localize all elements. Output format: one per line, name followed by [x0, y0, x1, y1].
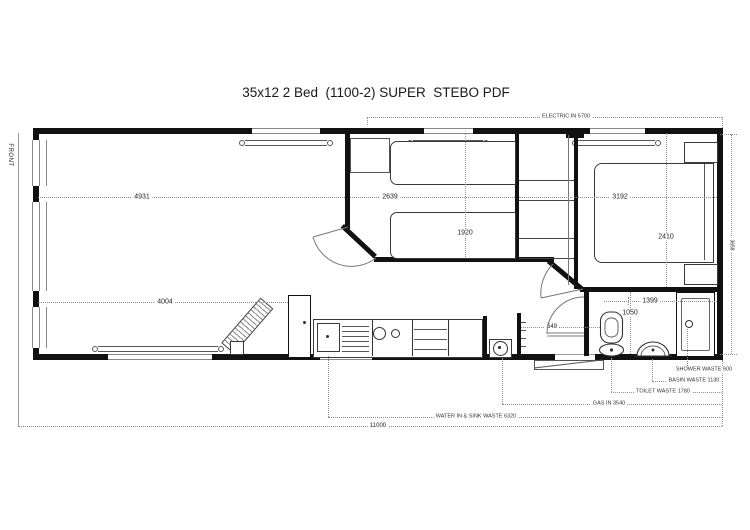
twin-door-icon: [313, 227, 376, 266]
drawing-overlay: [0, 0, 750, 530]
basin-icon: [634, 342, 672, 356]
master-door-icon: [541, 264, 583, 298]
step-diagonal: [534, 360, 602, 368]
toilet-icon: [600, 312, 624, 356]
floor-plan-page: 35x12 2 Bed (1100-2) SUPER STEBO PDF FRO…: [0, 0, 750, 530]
bathroom-door-icon: [547, 297, 584, 336]
